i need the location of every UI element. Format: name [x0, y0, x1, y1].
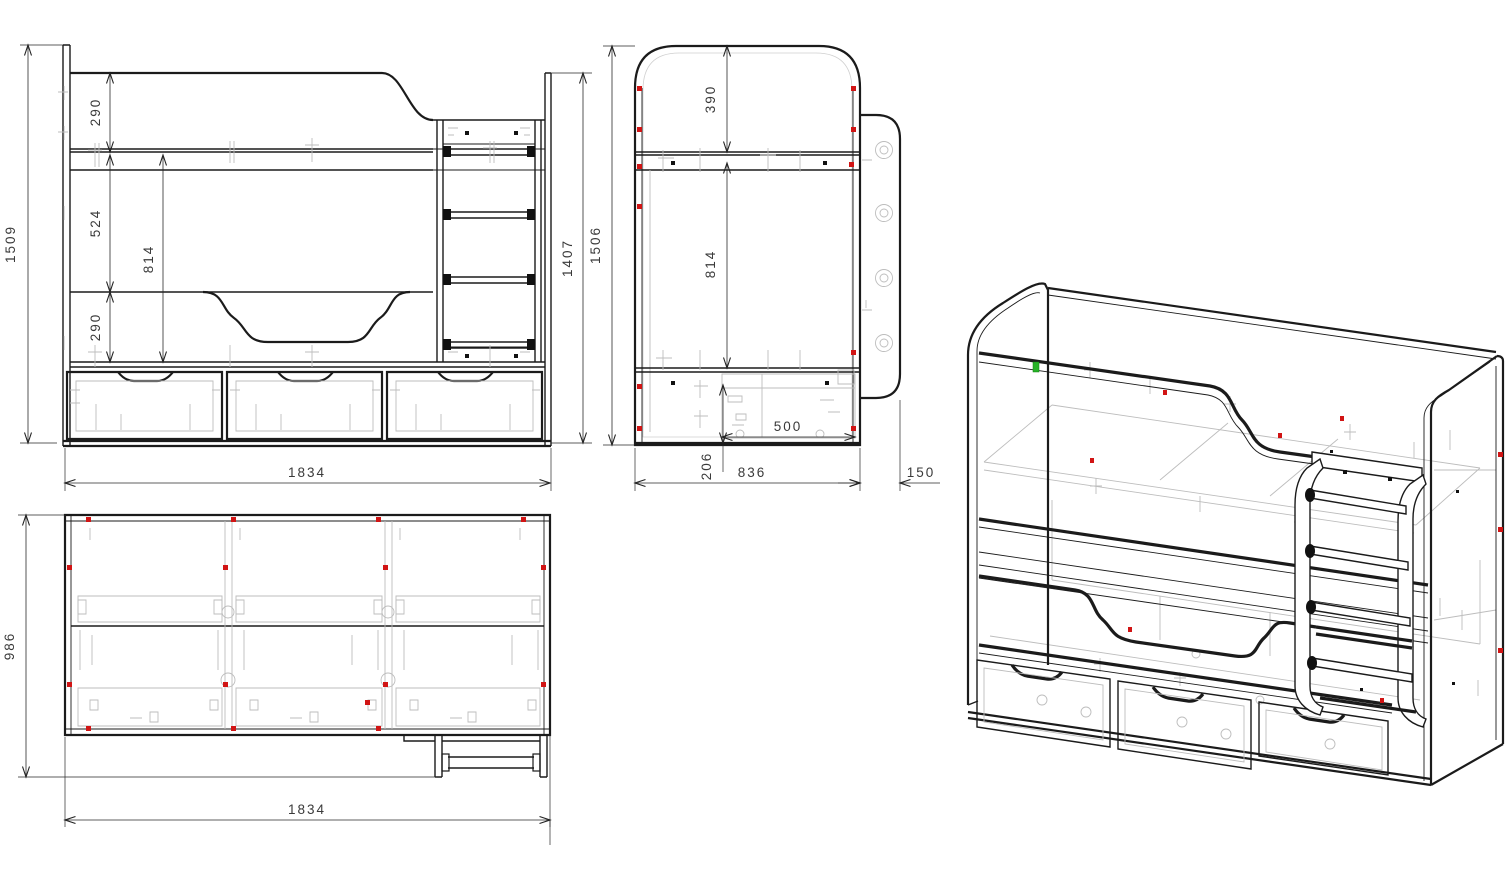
side-outline [635, 46, 860, 445]
iso-markers [1033, 362, 1503, 703]
iso-right-panel [1424, 356, 1503, 785]
front-upper-platform [70, 149, 433, 170]
iso-back-rail [1048, 288, 1496, 352]
front-rail-dip [203, 292, 410, 342]
dim-front-width: 1834 [288, 465, 326, 480]
blueprint-canvas: 1509 290 524 814 290 1407 1834 [0, 0, 1510, 872]
dim-front-total-height: 1509 [3, 225, 18, 263]
screw-dot [465, 131, 469, 135]
technical-drawing: 1509 290 524 814 290 1407 1834 [0, 0, 1510, 872]
dim-side-drawer-depth: 500 [774, 419, 803, 434]
dim-top-width: 1834 [288, 802, 326, 817]
dim-front-panel-height: 1407 [560, 239, 575, 277]
dim-side-headboard: 390 [703, 85, 718, 114]
iso-left-panel [968, 283, 1048, 705]
front-top-rail [70, 73, 433, 120]
fitting-circle [876, 142, 893, 159]
dim-side-ladder-offset: 150 [907, 465, 936, 480]
drawer-handle-cutout [118, 372, 493, 381]
iso-rail-dip [979, 576, 1316, 656]
dim-front-lower-rail: 290 [88, 313, 103, 342]
rung-cap [443, 146, 451, 157]
green-selection-marker [1033, 362, 1039, 372]
side-lower-platform [635, 368, 860, 372]
front-ladder [433, 120, 545, 362]
front-base [63, 441, 551, 446]
front-drawers [67, 372, 542, 439]
top-drawer-outlines [78, 528, 540, 726]
side-markers [637, 86, 856, 431]
iso-bottom-edge [968, 712, 1431, 785]
iso-front-rail [979, 353, 1316, 464]
iso-ladder [1295, 452, 1426, 727]
side-ladder-panel [860, 115, 900, 398]
top-view: 986 1834 [2, 515, 550, 845]
front-lower-platform [70, 362, 545, 367]
top-dimensions: 986 1834 [2, 515, 550, 827]
side-dimensions: 1506 390 814 500 206 836 150 [588, 46, 940, 491]
dim-top-depth: 986 [2, 632, 17, 661]
iso-view [968, 283, 1503, 785]
top-outline [65, 515, 550, 735]
dim-front-bunk-gap: 814 [141, 245, 156, 274]
dim-side-total-height: 1506 [588, 226, 603, 264]
dim-side-drawer-height: 206 [699, 452, 714, 481]
top-ladder [404, 735, 550, 845]
side-view: 1506 390 814 500 206 836 150 [588, 46, 940, 491]
dim-front-upper-gap: 524 [88, 209, 103, 238]
iso-lower-platform [979, 645, 1392, 705]
iso-drawers [977, 660, 1388, 775]
top-markers [67, 517, 546, 731]
dim-front-top-rail: 290 [88, 98, 103, 127]
front-view: 1509 290 524 814 290 1407 1834 [3, 45, 592, 491]
dim-side-bunk-gap: 814 [703, 250, 718, 279]
front-dimensions: 1509 290 524 814 290 1407 1834 [3, 45, 592, 491]
top-dividers [225, 521, 392, 729]
dim-side-depth: 836 [738, 465, 767, 480]
front-right-panel [545, 73, 551, 446]
